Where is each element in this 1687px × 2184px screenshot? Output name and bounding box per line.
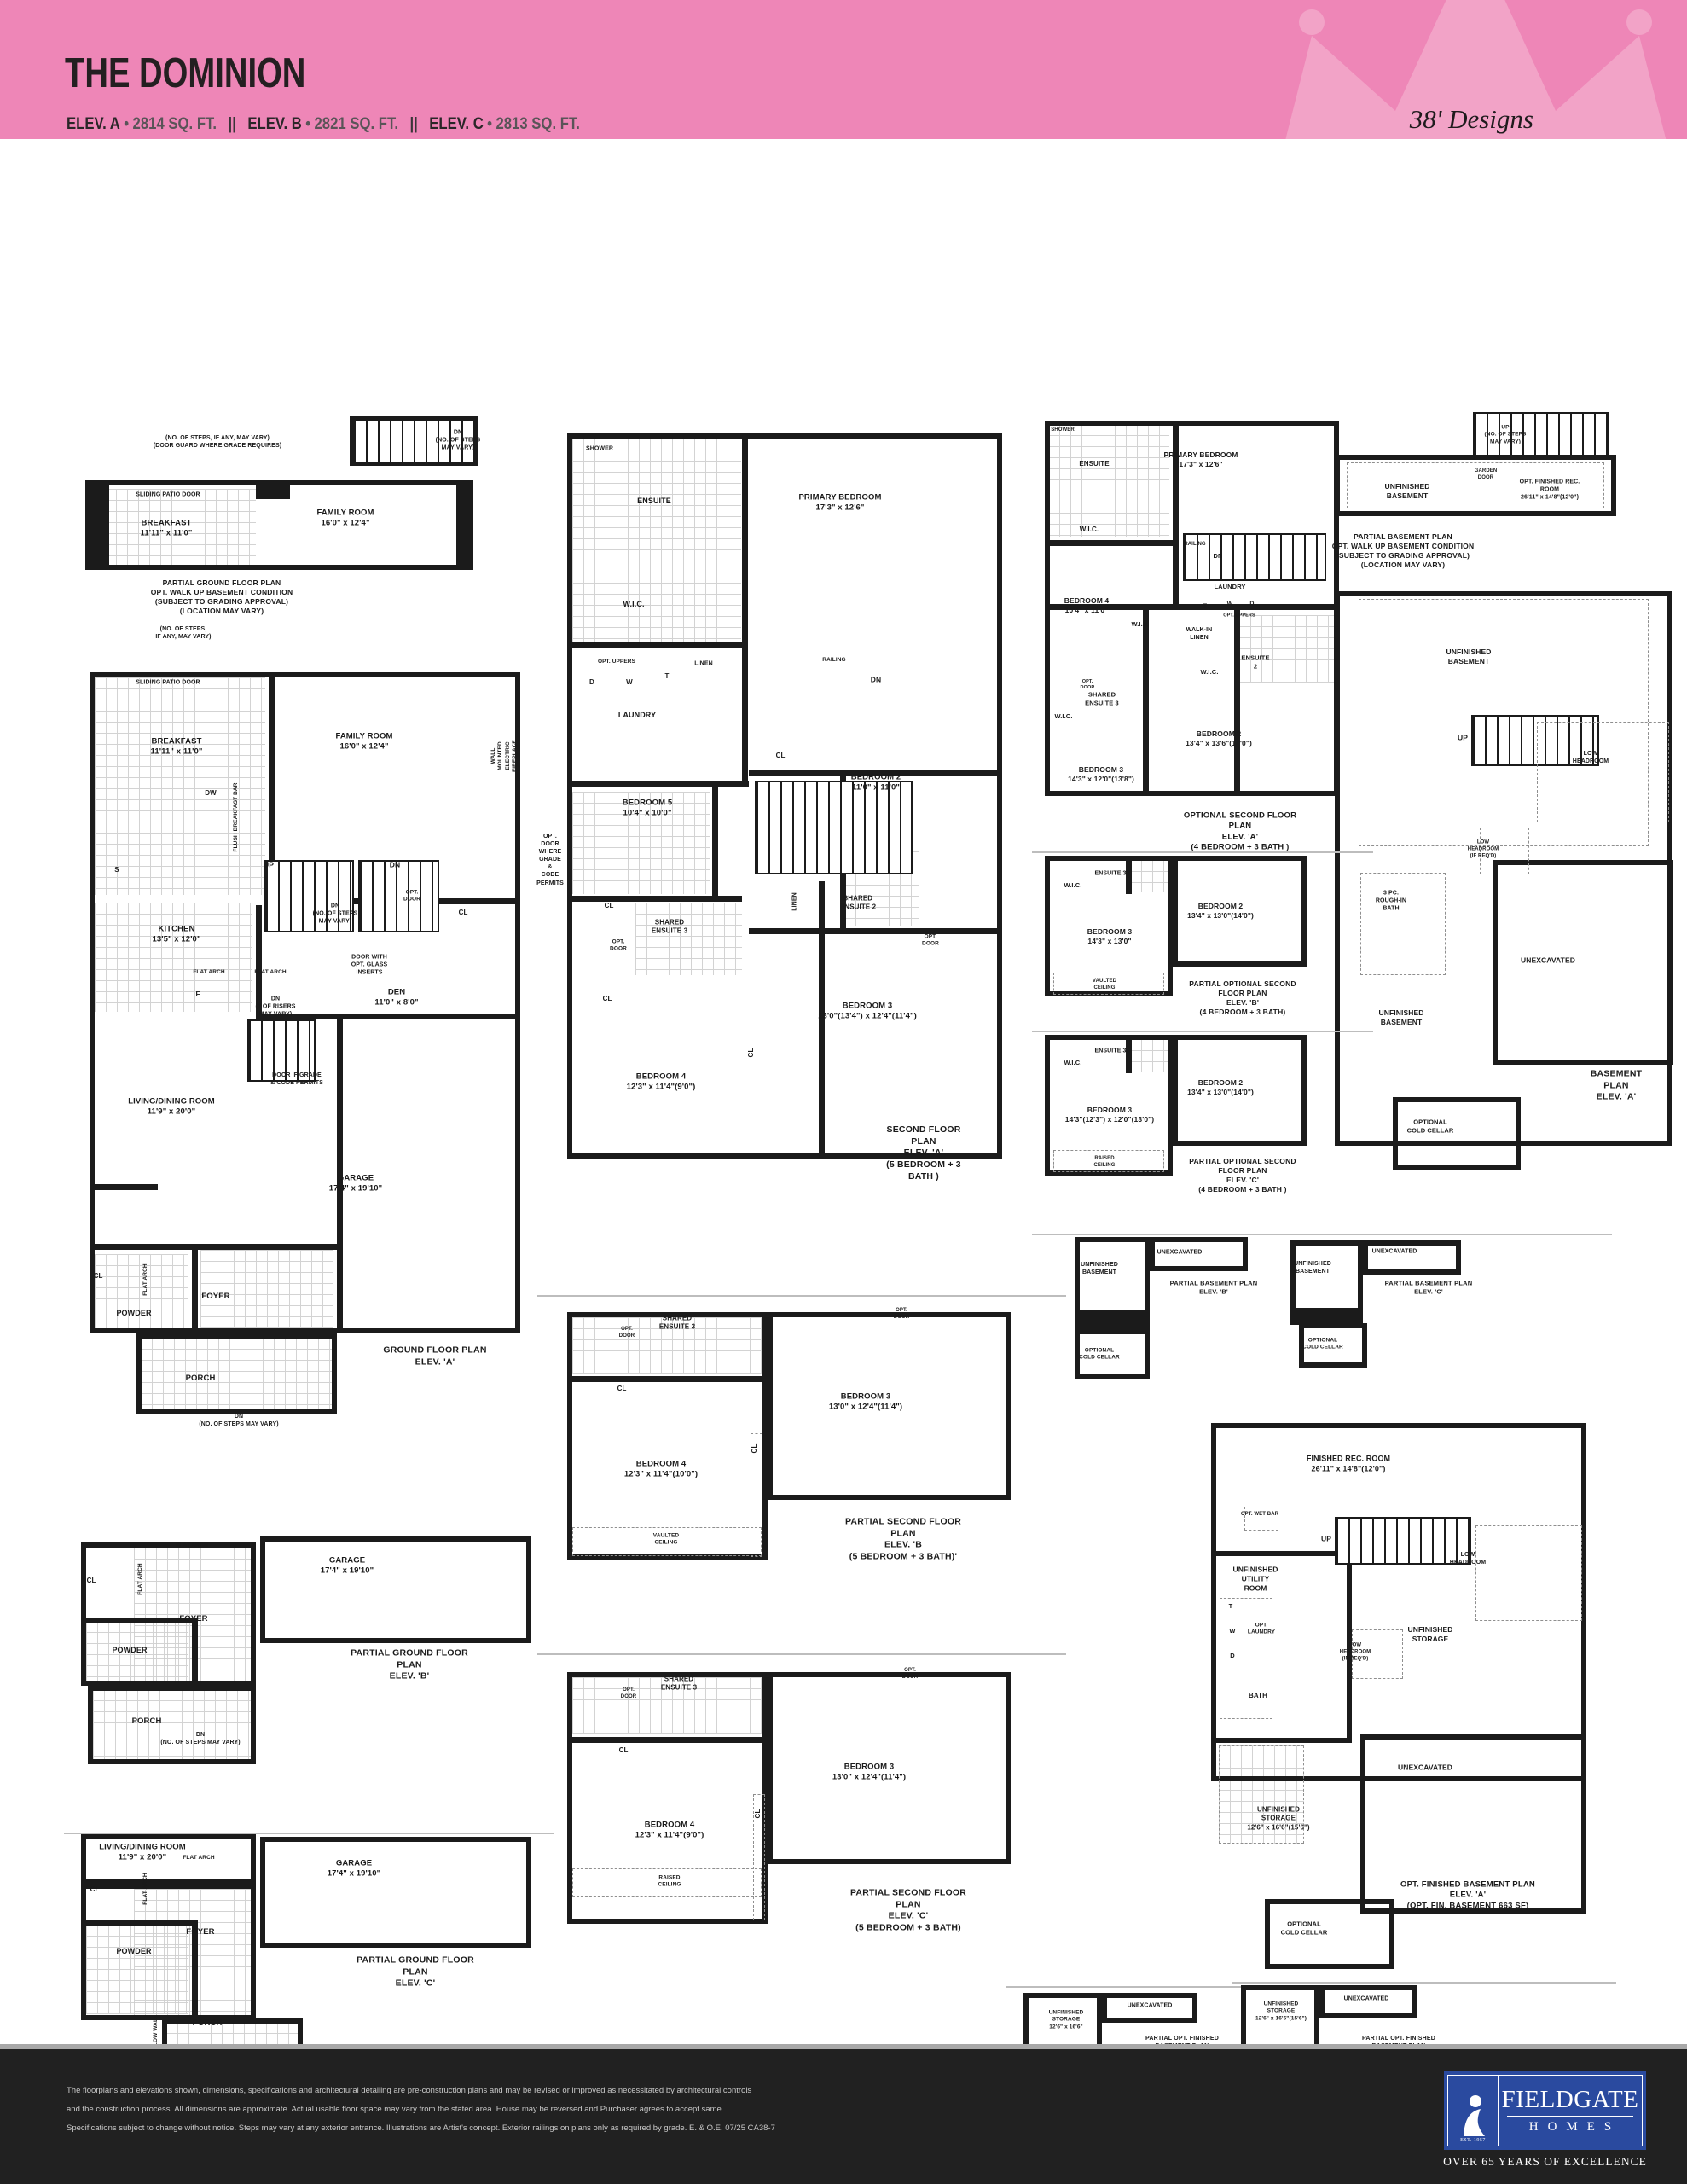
plan-caption: OPTIONAL SECOND FLOOR PLAN ELEV. 'A' (4 … <box>1180 810 1301 852</box>
brochure-page: THE DOMINION ELEV. A•2814 SQ. FT. || ELE… <box>0 0 1687 2184</box>
room-label: RAILING <box>822 657 845 664</box>
room-label: GARDEN DOOR <box>1475 468 1498 482</box>
interior-wall <box>90 1184 158 1190</box>
room-label: FLUSH BREAKFAST BAR <box>233 783 240 852</box>
room-label: CL <box>754 1809 762 1819</box>
room-label: OPT. DOOR <box>922 934 939 949</box>
room-label: VAULTED CEILING <box>653 1533 679 1548</box>
room-label: UNFINISHED STORAGE 12'6" x 16'6"(15'6") <box>1255 2001 1307 2022</box>
room-label: OPT. LAUNDRY <box>1248 1623 1275 1637</box>
plan-partial-opt-second-elev-c: ENSUITE 3W.I.C.BEDROOM 2 13'4" x 13'0"(1… <box>1045 1031 1360 1210</box>
room-label: DN <box>390 860 400 869</box>
bullet: • <box>302 115 315 133</box>
room-label: UNFINISHED BASEMENT <box>1385 482 1430 501</box>
room-label: DOOR IF GRADE & CODE PERMITS <box>270 1072 323 1087</box>
room-label: GARAGE 17'4" x 19'10" <box>328 1859 380 1880</box>
interior-wall <box>456 480 473 570</box>
room-label: SHOWER <box>1051 427 1075 434</box>
plan-partial-basement-elev-c: UNFINISHED BASEMENTUNEXCAVATEDPARTIAL BA… <box>1284 1234 1574 1400</box>
room-label: UP <box>264 860 274 869</box>
room-label: DN (# OF RISERS MAY VARY) <box>255 995 295 1018</box>
interior-wall <box>567 1737 768 1743</box>
interior-wall <box>1290 1313 1363 1325</box>
room-label: UNEXCAVATED <box>1128 2001 1173 2009</box>
room-label: PORCH <box>132 1716 162 1727</box>
room-label: OPTIONAL COLD CELLAR <box>1302 1338 1343 1352</box>
room-label: BEDROOM 2 13'4" x 13'6"(14'0") <box>1186 729 1252 748</box>
room-label: BEDROOM 3 14'3" x 12'0"(13'8") <box>1068 765 1134 784</box>
wall-outline <box>90 672 520 1333</box>
interior-wall <box>567 1376 768 1382</box>
room-label: PORCH <box>186 1374 216 1384</box>
room-label: OPT. DOOR <box>619 1327 635 1340</box>
plan-caption: PARTIAL BASEMENT PLAN ELEV. 'B' <box>1170 1279 1258 1296</box>
room-label: CL <box>87 1577 96 1585</box>
room-label: W.I.C. <box>1200 668 1218 677</box>
plan-caption: PARTIAL OPTIONAL SECOND FLOOR PLAN ELEV.… <box>1184 1157 1301 1194</box>
room-label: PRIMARY BEDROOM 17'3" x 12'6" <box>1164 450 1238 469</box>
plan-caption: PARTIAL OPTIONAL SECOND FLOOR PLAN ELEV.… <box>1184 979 1301 1017</box>
room-label: RAISED CEILING <box>1093 1156 1115 1170</box>
room-label: UNFINISHED STORAGE <box>1408 1625 1453 1644</box>
room-label: DN <box>871 675 881 684</box>
room-label: SHOWER <box>586 444 613 452</box>
wall-outline <box>1493 860 1673 1065</box>
room-label: UNFINISHED BASEMENT <box>1446 648 1492 666</box>
room-label: D <box>1249 600 1254 607</box>
interior-wall <box>1234 610 1240 796</box>
room-label: UP (NO. OF STEPS MAY VARY) <box>1485 424 1527 445</box>
disclaimer-line: The floorplans and elevations shown, dim… <box>67 2082 775 2100</box>
logo-homes-label: HOMES <box>1520 2121 1621 2134</box>
room-label: UP <box>1458 733 1468 742</box>
interior-wall <box>256 480 290 499</box>
wall-outline <box>1363 1240 1461 1275</box>
room-label: DN (NO. OF STEPS MAY VARY) <box>436 428 481 451</box>
elev-a-sqft: 2814 SQ. FT. <box>133 115 217 133</box>
room-label: UNEXCAVATED <box>1398 1763 1452 1772</box>
dashed-feature <box>1475 1525 1582 1621</box>
room-label: W.I.C. <box>1054 712 1072 721</box>
room-label: CL <box>747 1048 756 1058</box>
interior-wall <box>712 787 718 896</box>
room-label: FLAT ARCH <box>142 1263 149 1295</box>
room-label: CL <box>459 909 468 917</box>
room-label: CL <box>94 1272 103 1281</box>
room-label: LOW HEADROOM <box>1573 750 1609 765</box>
designs-series-label: 38' Designs <box>1410 104 1533 135</box>
interior-wall <box>567 781 749 787</box>
room-label: BEDROOM 3 13'0" x 12'4"(11'4") <box>832 1763 906 1784</box>
wall-outline <box>81 1542 256 1686</box>
section-cut-line <box>1032 1031 1373 1032</box>
interior-wall <box>567 642 746 648</box>
room-label: FOYER <box>201 1292 229 1302</box>
bullet: • <box>120 115 133 133</box>
room-label: UNFINISHED BASEMENT <box>1081 1261 1118 1276</box>
room-label: SHARED ENSUITE 3 <box>661 1676 697 1693</box>
room-label: W.I.C. <box>623 600 644 610</box>
room-label: W <box>1229 1627 1235 1635</box>
plan-partial-ground-elev-b: FLAT ARCHCLFLAT ARCHFOYERPOWDERGARAGE 17… <box>81 1534 546 1798</box>
room-label: BEDROOM 5 10'4" x 10'0" <box>623 799 672 820</box>
room-label: T <box>1229 1602 1233 1611</box>
room-label: OPT. DOOR <box>894 1308 909 1321</box>
room-label: 3 PC. ROUGH-IN BATH <box>1376 889 1406 912</box>
wall-outline <box>136 1333 337 1414</box>
room-label: BEDROOM 3 14'3" x 13'0" <box>1087 927 1132 946</box>
elev-a-label: ELEV. A <box>67 115 120 133</box>
room-label: W <box>626 678 633 687</box>
room-label: UNEXCAVATED <box>1157 1248 1203 1256</box>
plan-basement-elev-a: UNFINISHED BASEMENTUPLOW HEADROOMLOW HEA… <box>1335 587 1687 1235</box>
divider: || <box>403 115 426 133</box>
dashed-feature <box>1359 599 1649 846</box>
header: THE DOMINION ELEV. A•2814 SQ. FT. || ELE… <box>0 0 1687 139</box>
wall-outline <box>567 1312 768 1560</box>
section-cut-line <box>1032 851 1373 853</box>
elev-c-label: ELEV. C <box>429 115 484 133</box>
room-label: SLIDING PATIO DOOR <box>136 678 200 686</box>
plan-partial-basement-walkup: UP (NO. OF STEPS MAY VARY)GARDEN DOORUNF… <box>1335 408 1629 587</box>
room-label: UNEXCAVATED <box>1521 955 1575 965</box>
disclaimer-line: Specifications subject to change without… <box>67 2119 775 2138</box>
room-label: FOYER <box>186 1927 214 1937</box>
room-label: UNEXCAVATED <box>1372 1247 1417 1255</box>
room-label: GARAGE 17'4" x 19'10" <box>321 1556 374 1577</box>
plan-partial-ground-walkup: (NO. OF STEPS, IF ANY, MAY VARY) (DOOR G… <box>81 408 546 634</box>
room-label: PRIMARY BEDROOM 17'3" x 12'6" <box>798 493 881 514</box>
room-label: RAILING <box>1184 542 1205 549</box>
room-label: OPT. DOOR <box>403 890 420 904</box>
interior-wall <box>1126 1035 1132 1073</box>
room-label: OPT. DOOR <box>621 1687 636 1701</box>
room-label: ENSUITE <box>1079 460 1109 468</box>
room-label: FLAT ARCH <box>142 1873 149 1904</box>
room-label: BREAKFAST 11'11" x 11'0" <box>151 737 203 758</box>
room-label: FLAT ARCH <box>183 1855 214 1862</box>
plan-optional-second-floor-elev-a: SHOWERENSUITEPRIMARY BEDROOM 17'3" x 12'… <box>1045 412 1360 860</box>
room-label: F <box>196 990 200 999</box>
interior-wall <box>90 1244 337 1250</box>
logo-tagline: OVER 65 YEARS OF EXCELLENCE <box>1435 2155 1655 2169</box>
room-label: BEDROOM 3 13'0"(13'4") x 12'4"(11'4") <box>818 1002 917 1023</box>
room-label: SHARED ENSUITE 2 <box>840 895 876 913</box>
room-label: UNFINISHED UTILITY ROOM <box>1233 1565 1278 1593</box>
room-label: LIVING/DINING ROOM 11'9" x 20'0" <box>128 1097 215 1118</box>
interior-wall <box>1075 1316 1150 1329</box>
room-label: UP <box>1321 1534 1331 1543</box>
footer: The floorplans and elevations shown, dim… <box>0 2044 1687 2184</box>
room-label: SHARED ENSUITE 3 <box>652 919 687 937</box>
room-label: GARAGE 17'4" x 19'10" <box>329 1174 382 1195</box>
room-label: BEDROOM 4 12'3" x 11'4"(9'0") <box>635 1821 704 1842</box>
fieldgate-logo: EST. 1957 FIELDGATE HOMES <box>1444 2071 1646 2150</box>
room-label: D <box>589 678 594 687</box>
room-label: CL <box>603 995 612 1003</box>
elev-b-sqft: 2821 SQ. FT. <box>314 115 398 133</box>
section-cut-line <box>1232 1982 1616 1984</box>
room-label: FOYER <box>179 1614 207 1624</box>
plan-partial-opt-second-elev-b: ENSUITE 3W.I.C.BEDROOM 2 13'4" x 13'0"(1… <box>1045 851 1360 1031</box>
room-label: T <box>1203 602 1207 610</box>
room-label: BEDROOM 4 12'3" x 11'4"(9'0") <box>627 1072 696 1094</box>
room-label: CL <box>605 902 614 910</box>
room-label: SLIDING PATIO DOOR <box>136 491 200 498</box>
room-label: RAISED CEILING <box>658 1875 681 1890</box>
plan-caption: PARTIAL GROUND FLOOR PLAN OPT. WALK UP B… <box>151 578 293 616</box>
room-label: LOW WALL <box>153 2015 159 2046</box>
room-label: W.I.C. <box>1064 881 1081 890</box>
room-label: FLAT ARCH <box>254 969 286 976</box>
room-label: OPTIONAL COLD CELLAR <box>1281 1920 1328 1937</box>
room-label: BEDROOM 2 13'4" x 13'0"(14'0") <box>1187 902 1254 921</box>
plan-caption: PARTIAL SECOND FLOOR PLAN ELEV. 'C' (5 B… <box>840 1888 977 1935</box>
plan-caption: SECOND FLOOR PLAN ELEV. 'A' (5 BEDROOM +… <box>876 1124 971 1182</box>
room-label: ENSUITE <box>637 497 671 507</box>
room-label: WALL MOUNTED ELECTRIC FIREPLACE <box>490 735 519 776</box>
disclaimer-line: and the construction process. All dimens… <box>67 2100 775 2119</box>
fieldgate-logo-text: FIELDGATE HOMES <box>1499 2076 1642 2146</box>
room-label: OPTIONAL COLD CELLAR <box>1079 1348 1120 1362</box>
room-label: OPT. FINISHED REC. ROOM 26'11" x 14'8"(1… <box>1510 478 1590 501</box>
interior-wall <box>1126 856 1132 894</box>
wall-outline <box>260 1536 531 1643</box>
room-label: ENSUITE 3 <box>1094 1047 1126 1054</box>
room-label: (NO. OF STEPS, IF ANY, MAY VARY) (DOOR G… <box>154 434 281 450</box>
wall-outline <box>88 1686 256 1764</box>
room-label: SHARED ENSUITE 3 <box>1085 690 1119 707</box>
room-label: W.I.C. <box>1080 526 1099 534</box>
room-label: SHARED ENSUITE 3 <box>659 1315 695 1333</box>
room-label: LOW HEADROOM <box>1450 1551 1486 1566</box>
dashed-feature <box>1360 873 1446 975</box>
interior-wall <box>192 1618 198 1686</box>
interior-wall <box>192 1250 198 1333</box>
logo-divider <box>1507 2116 1633 2117</box>
room-label: OPT. WET BAR <box>1241 1512 1278 1519</box>
room-label: DOOR WITH OPT. GLASS INSERTS <box>351 953 388 976</box>
room-label: BEDROOM 3 14'3"(12'3") x 12'0"(13'0") <box>1065 1106 1154 1124</box>
section-cut-line <box>537 1653 1066 1655</box>
fieldgate-figure-icon: EST. 1957 <box>1448 2076 1499 2146</box>
dashed-feature <box>1220 1598 1272 1719</box>
figure-icon <box>1458 2094 1487 2138</box>
room-label: CL <box>776 752 786 760</box>
room-label: T <box>665 672 670 681</box>
wall-outline <box>1290 1240 1363 1313</box>
room-label: LOW HEADROOM (IF REQ'D) <box>1468 839 1499 859</box>
room-label: CL <box>617 1385 627 1393</box>
room-label: KITCHEN 13'5" x 12'0" <box>152 925 200 946</box>
plan-caption: PARTIAL GROUND FLOOR PLAN ELEV. 'B' <box>341 1648 478 1683</box>
room-label: FLAT ARCH <box>137 1563 144 1594</box>
room-label: UNFINISHED STORAGE 12'6" x 16'6" <box>1049 2009 1084 2030</box>
floorplan-canvas: (NO. OF STEPS, IF ANY, MAY VARY) (DOOR G… <box>0 139 1687 2044</box>
room-label: BEDROOM 2 13'4" x 13'0"(14'0") <box>1187 1078 1254 1097</box>
room-label: BEDROOM 4 10'4" x 11'0" <box>1064 596 1109 615</box>
room-label: DEN 11'0" x 8'0" <box>374 988 418 1009</box>
room-label: OPT. DOOR <box>610 939 627 954</box>
room-label: DN (NO. OF STEPS MAY VARY) <box>199 1413 278 1428</box>
room-label: UNFINISHED BASEMENT <box>1379 1008 1424 1027</box>
room-label: W.I.C. <box>1131 620 1149 629</box>
room-label: LIVING/DINING ROOM 11'9" x 20'0" <box>99 1843 186 1864</box>
room-label: UNFINISHED STORAGE 12'6" x 16'6"(15'6") <box>1247 1805 1309 1832</box>
room-label: OPTIONAL COLD CELLAR <box>1407 1118 1454 1135</box>
room-label: LAUNDRY <box>1214 583 1245 591</box>
room-label: (NO. OF STEPS, IF ANY, MAY VARY) <box>155 625 211 641</box>
room-label: BEDROOM 3 13'0" x 12'4"(11'4") <box>829 1392 902 1414</box>
logo-est-label: EST. 1957 <box>1460 2138 1486 2143</box>
plan-caption: PARTIAL GROUND FLOOR PLAN ELEV. 'C' <box>351 1955 481 1990</box>
interior-wall <box>81 1920 196 1926</box>
stairs <box>755 781 913 874</box>
room-label: CL <box>619 1746 629 1755</box>
wall-outline <box>260 1837 531 1948</box>
interior-wall <box>567 896 742 902</box>
room-label: OPT. UPPERS <box>598 659 635 665</box>
plan-caption: PARTIAL SECOND FLOOR PLAN ELEV. 'B (5 BE… <box>832 1517 974 1564</box>
room-label: FLAT ARCH <box>176 1542 207 1549</box>
divider: || <box>221 115 244 133</box>
room-label: ENSUITE 2 <box>1241 653 1269 671</box>
plan-ground-floor-elev-a: (NO. OF STEPS, IF ANY, MAY VARY)SLIDING … <box>81 647 546 1457</box>
room-label: OPT. DOOR <box>1081 679 1095 691</box>
room-label: POWDER <box>116 1309 151 1319</box>
section-cut-line <box>1245 1234 1612 1235</box>
plan-caption: OPT. FINISHED BASEMENT PLAN ELEV. 'A' (O… <box>1400 1879 1535 1911</box>
room-label: DN (NO. OF STEPS MAY VARY) <box>313 902 358 925</box>
room-label: S <box>114 866 119 874</box>
room-label: LOW HEADROOM (IF REQ'D) <box>1340 1642 1371 1662</box>
interior-wall <box>1143 610 1149 796</box>
fieldgate-logo-frame: EST. 1957 FIELDGATE HOMES <box>1447 2075 1643 2146</box>
room-label: UNEXCAVATED <box>1344 1995 1389 2002</box>
dashed-feature <box>1244 1507 1278 1531</box>
elev-c-sqft: 2813 SQ. FT. <box>496 115 580 133</box>
disclaimer-text: The floorplans and elevations shown, dim… <box>67 2082 775 2138</box>
room-label: OPT. DOOR <box>902 1668 918 1682</box>
room-label: DN <box>1213 552 1222 561</box>
room-label: POWDER <box>116 1947 151 1957</box>
room-label: LINEN <box>791 892 798 911</box>
room-label: UNFINISHED BASEMENT <box>1294 1260 1331 1275</box>
room-label: FINISHED REC. ROOM 26'11" x 14'8"(12'0") <box>1307 1454 1390 1473</box>
plan-caption: GROUND FLOOR PLAN ELEV. 'A' <box>383 1345 486 1368</box>
room-label: POWDER <box>112 1646 147 1656</box>
interior-wall <box>749 928 1002 934</box>
wall-outline <box>81 1884 256 2020</box>
elev-b-label: ELEV. B <box>247 115 302 133</box>
room-label: BEDROOM 4 12'3" x 11'4"(10'0") <box>624 1460 698 1481</box>
plan-caption: PARTIAL BASEMENT PLAN ELEV. 'C' <box>1385 1279 1473 1296</box>
elevation-summary: ELEV. A•2814 SQ. FT. || ELEV. B•2821 SQ.… <box>67 115 580 134</box>
room-label: W.I.C. <box>1064 1059 1081 1067</box>
room-label: DW <box>205 789 217 798</box>
room-label: PORCH <box>193 2018 223 2029</box>
stairs <box>1183 533 1326 581</box>
plan-caption: BASEMENT PLAN ELEV. 'A' <box>1578 1069 1655 1104</box>
logo-name: FIELDGATE <box>1502 2088 1639 2112</box>
bullet: • <box>484 115 496 133</box>
room-label: LAUNDRY <box>618 711 656 721</box>
room-label: D <box>1230 1652 1235 1660</box>
room-label: W <box>1227 600 1233 607</box>
interior-wall <box>1045 540 1173 546</box>
room-label: FAMILY ROOM 16'0" x 12'4" <box>316 508 374 530</box>
room-label: DN (NO. OF STEPS MAY VARY) <box>160 1731 240 1746</box>
plan-second-floor-elev-a: SHOWERENSUITEPRIMARY BEDROOM 17'3" x 12'… <box>559 408 1019 1193</box>
room-label: FLAT ARCH <box>193 969 224 976</box>
room-label: OPT. UPPERS <box>1223 613 1255 619</box>
room-label: LINEN <box>694 659 713 667</box>
page-title: THE DOMINION <box>65 49 305 97</box>
room-label: BREAKFAST 11'11" x 11'0" <box>141 519 193 540</box>
plan-partial-second-elev-b: SHARED ENSUITE 3OPT. DOOROPT. DOORCLBEDR… <box>559 1295 1045 1577</box>
room-label: ENSUITE 3 <box>1094 869 1126 877</box>
interior-wall <box>1173 421 1179 604</box>
interior-wall <box>742 433 748 787</box>
plan-partial-second-elev-c: SHARED ENSUITE 3OPT. DOOROPT. DOORCLBEDR… <box>559 1653 1045 1943</box>
room-label: CL <box>90 1885 100 1894</box>
room-label: BATH <box>1249 1692 1267 1700</box>
room-label: BEDROOM 2 11'0" x 11'0" <box>851 773 901 794</box>
section-cut-line <box>537 1295 1066 1297</box>
plan-opt-finished-basement-elev-a: FINISHED REC. ROOM 26'11" x 14'8"(12'0")… <box>1207 1389 1687 1986</box>
plan-caption: PARTIAL BASEMENT PLAN OPT. WALK UP BASEM… <box>1332 532 1475 570</box>
stairs <box>358 860 439 932</box>
interior-wall <box>85 480 109 570</box>
room-label: FAMILY ROOM 16'0" x 12'4" <box>335 732 392 753</box>
room-label: CL <box>751 1444 759 1454</box>
room-label: WALK-IN LINEN <box>1186 626 1213 642</box>
room-label: VAULTED CEILING <box>1093 979 1116 992</box>
